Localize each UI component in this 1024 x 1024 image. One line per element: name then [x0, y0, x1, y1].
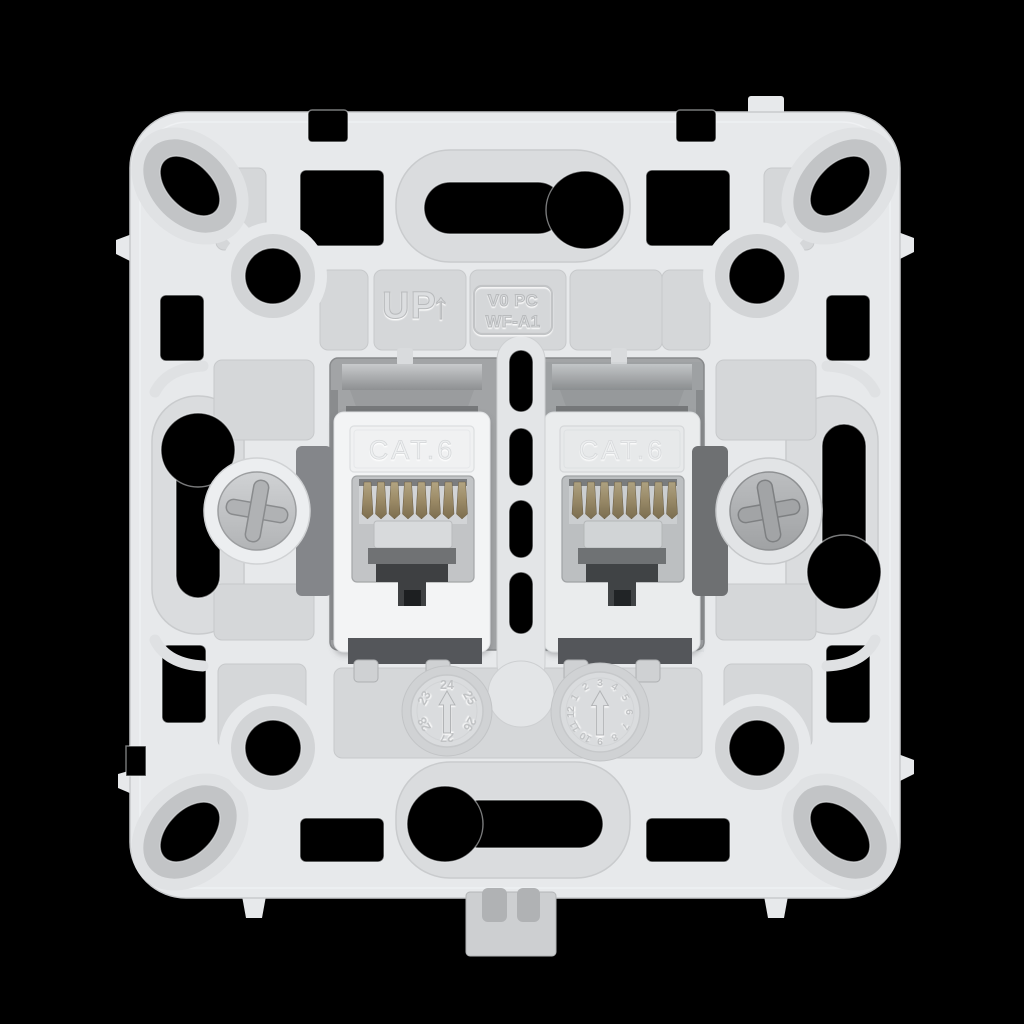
- wall-socket-mounting-frame: CAT.6 CAT.6 UP ↑: [0, 0, 1024, 1024]
- left-upper-cutout: [160, 295, 204, 361]
- cat6-label-right: CAT.6: [579, 435, 666, 465]
- month-wheel-number: 3: [597, 677, 603, 689]
- tab-slot: [517, 888, 540, 922]
- boss-bottom-right: [703, 694, 811, 802]
- bottom-left-cutout: [300, 818, 384, 862]
- product-photo-stage: CAT.6 CAT.6 UP ↑: [0, 0, 1024, 1024]
- year-wheel-number: 24: [440, 678, 454, 692]
- cat6-label-left: CAT.6: [369, 435, 456, 465]
- central-divider-bar: [488, 336, 554, 727]
- bottom-left-foot: [242, 896, 266, 918]
- orientation-marking: UP ↑: [382, 285, 450, 327]
- jack-clip: [354, 660, 378, 682]
- boss-top-right: [703, 222, 811, 330]
- boss-top-left: [219, 222, 327, 330]
- bottom-right-foot: [764, 896, 788, 918]
- month-wheel-number: 6: [623, 709, 635, 715]
- up-label: UP: [382, 285, 437, 327]
- port-latch-shelf: [374, 521, 452, 548]
- right-upper-cutout: [826, 295, 870, 361]
- tab-slot: [482, 888, 507, 922]
- date-wheel-month: 1 2 3 4 5 6 7 8 9 10 11 12: [551, 663, 649, 761]
- bottom-connector-tab: [466, 888, 556, 956]
- date-wheel-year: 23 24 25 26 27 28: [402, 666, 492, 756]
- jack-housing: [342, 364, 482, 390]
- bottom-right-cutout: [646, 818, 730, 862]
- boss-bottom-left: [219, 694, 327, 802]
- material-code-line2: WF-A1: [486, 313, 541, 331]
- top-left-cutout: [300, 170, 384, 246]
- month-wheel-number: 9: [597, 735, 603, 747]
- month-wheel-number: 12: [565, 706, 577, 718]
- top-right-cutout: [646, 170, 730, 246]
- jack-clip: [636, 660, 660, 682]
- rj45-keystone-jack: [334, 364, 490, 652]
- material-code-line1: V0 PC: [488, 292, 538, 310]
- module-clip-top-left: [397, 348, 413, 366]
- up-arrow-icon: ↑: [432, 285, 450, 326]
